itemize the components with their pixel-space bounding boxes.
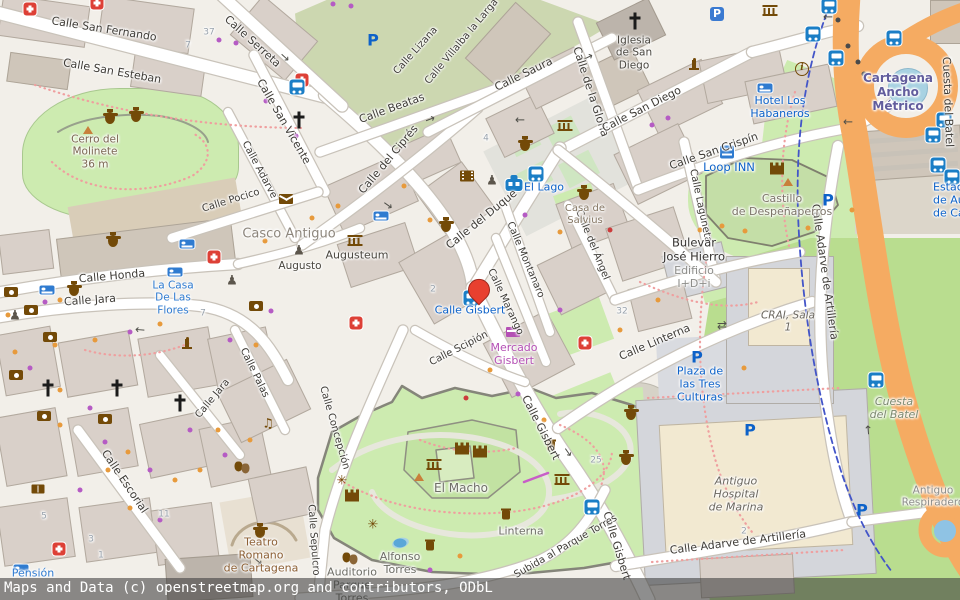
building bbox=[0, 229, 54, 275]
house-number: 11 bbox=[158, 510, 169, 521]
music-icon: ♫ bbox=[262, 418, 274, 431]
poi-dot bbox=[856, 60, 861, 65]
house-number: 37 bbox=[203, 28, 214, 39]
mus-icon bbox=[763, 4, 778, 16]
map-label: Calle Sepulcro bbox=[305, 504, 322, 576]
waste-icon bbox=[426, 542, 434, 551]
bus-icon bbox=[806, 27, 821, 42]
poi-dot bbox=[650, 123, 655, 128]
building bbox=[0, 497, 76, 566]
poi-dot bbox=[666, 116, 671, 121]
bus-icon bbox=[926, 128, 941, 143]
house-number: 32 bbox=[616, 307, 627, 318]
poi-dot bbox=[836, 18, 841, 23]
castle-icon bbox=[473, 449, 487, 458]
map-label: Cuesta del Batel bbox=[939, 57, 955, 148]
info-icon: i bbox=[795, 62, 809, 76]
map-label: CRAI, Sala 1 bbox=[761, 310, 815, 335]
ar-icon: → bbox=[560, 444, 576, 459]
mus-icon bbox=[555, 473, 570, 485]
poi-dot bbox=[656, 298, 661, 303]
memo-icon bbox=[185, 339, 189, 349]
house-number: 7 bbox=[200, 309, 206, 320]
pbox-icon: P bbox=[710, 7, 724, 21]
ruin-icon bbox=[783, 178, 793, 186]
house-number: 1 bbox=[98, 551, 104, 562]
castle-icon bbox=[345, 493, 359, 502]
building bbox=[6, 52, 72, 90]
map-label: Teatro Romano de Cartagena bbox=[224, 537, 299, 576]
map-label: Augusto bbox=[278, 260, 321, 272]
ph-icon bbox=[579, 337, 592, 350]
house-number: 25 bbox=[590, 456, 601, 467]
poi-dot bbox=[228, 338, 233, 343]
art-icon bbox=[43, 332, 57, 342]
cine-icon bbox=[460, 171, 474, 182]
poi-dot bbox=[148, 468, 153, 473]
ar-icon: → bbox=[843, 116, 853, 128]
poi-dot bbox=[188, 428, 193, 433]
art-icon bbox=[98, 414, 112, 424]
mus-icon bbox=[558, 119, 573, 131]
poi-dot bbox=[558, 230, 563, 235]
poi-dot bbox=[88, 406, 93, 411]
map-label: El Lago bbox=[524, 182, 564, 195]
poi-dot bbox=[216, 428, 221, 433]
poi-dot bbox=[217, 38, 222, 43]
art-icon bbox=[249, 301, 263, 311]
art-icon bbox=[37, 411, 51, 421]
poi-dot bbox=[458, 554, 463, 559]
ph-icon bbox=[208, 251, 221, 264]
map-label: Bulevar José Hierro bbox=[663, 236, 725, 263]
waste-icon bbox=[502, 511, 510, 520]
house-number: 2 bbox=[741, 527, 747, 538]
poi-dot bbox=[103, 440, 108, 445]
map-label: Subida al Parque Torres bbox=[512, 513, 619, 582]
cross-icon bbox=[42, 380, 55, 397]
map-label: Antiguo Respiradero bbox=[902, 485, 960, 510]
bus-icon bbox=[869, 373, 884, 388]
map-label: Linterna bbox=[498, 526, 543, 539]
poi-dot bbox=[428, 218, 433, 223]
map-label: Casa de Salvius bbox=[565, 203, 605, 227]
amph-icon bbox=[621, 453, 631, 465]
poi-dot bbox=[126, 450, 131, 455]
mus-icon bbox=[427, 458, 442, 470]
map-label: Casco Antiguo bbox=[242, 226, 335, 241]
poi-dot bbox=[128, 330, 133, 335]
poi-dot bbox=[516, 392, 521, 397]
amph-icon bbox=[579, 188, 589, 200]
amph-icon bbox=[131, 110, 141, 122]
building bbox=[930, 0, 960, 44]
poi-dot bbox=[58, 388, 63, 393]
map-label: Cerro del Molinete 36 m bbox=[71, 133, 119, 170]
art-icon bbox=[9, 370, 23, 380]
poi-dot bbox=[336, 204, 341, 209]
poi-dot bbox=[53, 343, 58, 348]
cross-icon bbox=[629, 13, 642, 30]
mail-icon bbox=[279, 194, 293, 204]
amph-icon bbox=[105, 112, 115, 124]
building bbox=[0, 407, 68, 487]
poi-dot bbox=[464, 396, 469, 401]
poi-dot bbox=[248, 438, 253, 443]
ar-icon: → bbox=[515, 114, 525, 126]
bed-icon bbox=[168, 268, 183, 277]
poi-dot bbox=[43, 300, 48, 305]
statue-icon: ♟ bbox=[226, 275, 238, 288]
map-label: Cartagena Ancho Métrico bbox=[863, 71, 933, 113]
map-label: Calle Concepción bbox=[316, 385, 351, 471]
map-label: Plaza de las Tres Culturas bbox=[677, 366, 723, 405]
poi-dot bbox=[742, 366, 747, 371]
poi-dot bbox=[488, 368, 493, 373]
mill-icon: ✳ bbox=[337, 475, 348, 488]
amph-icon bbox=[520, 139, 530, 151]
poi-dot bbox=[223, 453, 228, 458]
statue-icon: ♟ bbox=[486, 175, 498, 188]
masks-icon bbox=[343, 553, 358, 564]
map-label: Iglesia de San Diego bbox=[616, 34, 652, 71]
poi-dot bbox=[198, 468, 203, 473]
poi-dot bbox=[173, 478, 178, 483]
building bbox=[137, 326, 218, 398]
poi-dot bbox=[254, 343, 259, 348]
castle-icon bbox=[770, 166, 784, 175]
map-label: Edificio I+D+i bbox=[674, 265, 714, 291]
bed-icon bbox=[40, 286, 55, 295]
ar-icon: → bbox=[823, 11, 833, 23]
ph-icon bbox=[350, 317, 363, 330]
poi-dot bbox=[58, 298, 63, 303]
p-icon: P bbox=[367, 31, 379, 50]
bus-icon bbox=[585, 500, 600, 515]
ruin-icon bbox=[414, 473, 424, 481]
map-label: Estación de Autobuses de Cartagena bbox=[933, 182, 960, 221]
map-label: Castillo de Despeñaperros bbox=[732, 193, 833, 219]
poi-dot bbox=[310, 216, 315, 221]
statue-icon: ♟ bbox=[293, 245, 305, 258]
poi-dot bbox=[618, 328, 623, 333]
map-label: Mercado Gisbert bbox=[490, 342, 537, 368]
map-label: Cuesta del Batel bbox=[870, 396, 919, 422]
bed-icon bbox=[180, 240, 195, 249]
p-icon: P bbox=[856, 501, 868, 520]
poi-dot bbox=[743, 229, 748, 234]
book-icon bbox=[32, 485, 45, 494]
house-number: 5 bbox=[41, 512, 47, 523]
map-label: El Macho bbox=[434, 481, 488, 495]
ph-icon bbox=[91, 0, 104, 10]
attribution-bar: Maps and Data (c) openstreetmap.org and … bbox=[0, 578, 960, 600]
memo-icon bbox=[692, 60, 696, 70]
map-label: Augusteum bbox=[326, 250, 389, 263]
castle-icon bbox=[455, 446, 469, 455]
map-label: Loop INN bbox=[703, 161, 755, 175]
mus-icon bbox=[348, 234, 363, 246]
map-label: Antiguo Hospital de Marina bbox=[709, 476, 764, 515]
poi-dot bbox=[331, 2, 336, 7]
house-number: 7 bbox=[185, 41, 191, 52]
water-icon bbox=[394, 539, 407, 548]
cross-icon bbox=[111, 380, 124, 397]
map-canvas[interactable]: Maps and Data (c) openstreetmap.org and … bbox=[0, 0, 960, 600]
poi-dot bbox=[428, 568, 433, 573]
ph-icon bbox=[24, 3, 37, 16]
map-label: Hotel Los Habaneros bbox=[750, 95, 809, 121]
poi-dot bbox=[28, 366, 33, 371]
bus-icon bbox=[931, 158, 946, 173]
ar-icon: → bbox=[862, 424, 875, 435]
poi-dot bbox=[720, 224, 725, 229]
ar-icon: ⇄ bbox=[717, 319, 727, 331]
map-label: Calle Marango bbox=[484, 267, 525, 337]
bed-icon bbox=[758, 84, 773, 93]
poi-dot bbox=[806, 226, 811, 231]
bus-icon bbox=[529, 167, 544, 182]
poi-dot bbox=[234, 41, 239, 46]
bridge-path bbox=[524, 473, 548, 482]
poi-dot bbox=[158, 322, 163, 327]
map-label: La Casa De Las Flores bbox=[152, 279, 193, 316]
poi-dot bbox=[608, 228, 613, 233]
map-label: Calle Jara bbox=[64, 293, 117, 310]
poi-dot bbox=[402, 184, 407, 189]
poi-dot bbox=[78, 488, 83, 493]
house-number: 4 bbox=[483, 134, 489, 145]
poi-dot bbox=[558, 308, 563, 313]
house-number: 3 bbox=[88, 535, 94, 546]
ph-icon bbox=[53, 543, 66, 556]
pond-roundabout-bottom bbox=[934, 520, 956, 542]
bus-icon bbox=[887, 31, 902, 46]
map-label: Alfonso Torres bbox=[380, 551, 421, 577]
bus-icon bbox=[290, 80, 305, 95]
art-icon bbox=[24, 305, 38, 315]
poi-dot bbox=[846, 44, 851, 49]
map-label: Calle Gisbert bbox=[435, 305, 506, 318]
poi-dot bbox=[93, 338, 98, 343]
mill-icon: ✳ bbox=[368, 519, 379, 532]
amph-icon bbox=[626, 408, 636, 420]
p-icon: P bbox=[744, 421, 756, 440]
poi-dot bbox=[523, 213, 528, 218]
statue-icon: ♟ bbox=[9, 310, 21, 323]
amph-icon bbox=[108, 235, 118, 247]
poi-dot bbox=[269, 309, 274, 314]
poi-dot bbox=[850, 208, 855, 213]
poi-dot bbox=[349, 4, 354, 9]
amph-icon bbox=[441, 220, 451, 232]
ar-icon: → bbox=[134, 324, 145, 337]
map-label: Calle Scipión bbox=[428, 329, 491, 369]
cross-icon bbox=[174, 395, 187, 412]
poi-dot bbox=[13, 350, 18, 355]
masks-icon bbox=[235, 462, 250, 473]
house-number: 2 bbox=[430, 285, 436, 296]
art-icon bbox=[4, 287, 18, 297]
building bbox=[58, 330, 139, 398]
poi-dot bbox=[58, 423, 63, 428]
bus-icon bbox=[829, 51, 844, 66]
